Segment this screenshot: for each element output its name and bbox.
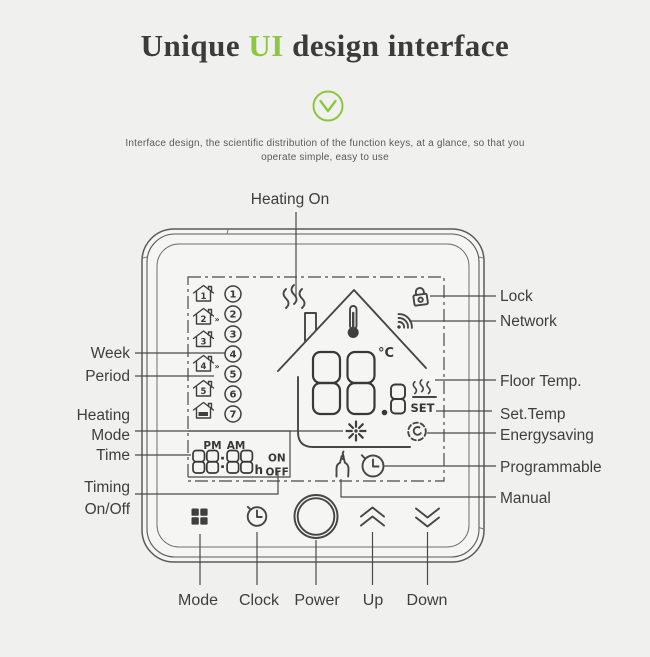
time-colon [221, 457, 224, 460]
callout-label-power: Power [294, 592, 339, 610]
callout-label-programmable: Programmable [500, 459, 602, 477]
callout-label-timing-onoff: Timing On/Off [60, 477, 130, 521]
callout-label-mode: Mode [178, 592, 218, 610]
celsius-unit: °C [378, 346, 394, 361]
week-number: 3 [230, 329, 237, 340]
callout-label-lock: Lock [500, 288, 533, 306]
set-indicator: SET [411, 401, 435, 415]
period-leave-mark: » [215, 315, 220, 324]
sun-heating-mode-icon [347, 422, 366, 441]
callout-label-clock: Clock [239, 592, 279, 610]
hour-unit: h [255, 463, 264, 477]
callout-label-time: Time [96, 447, 130, 465]
period-leave-mark: » [215, 362, 220, 371]
callout-label-down: Down [407, 592, 448, 610]
off-indicator: OFF [266, 467, 289, 479]
period-number: 3 [201, 338, 207, 348]
period-number: 5 [201, 387, 207, 397]
sleep-bed-mark [199, 412, 209, 416]
callout-label-period: Period [85, 368, 130, 386]
callout-label-floor-temp: Floor Temp. [500, 373, 582, 391]
callout-label-up: Up [363, 592, 383, 610]
week-number: 6 [230, 389, 237, 400]
week-number: 1 [230, 289, 237, 300]
callout-label-manual: Manual [500, 490, 551, 508]
week-number: 4 [230, 349, 237, 360]
week-number: 2 [230, 309, 237, 320]
period-number: 1 [201, 292, 207, 302]
period-number: 4 [201, 362, 207, 372]
callout-label-network: Network [500, 313, 557, 331]
callout-label-energysaving: Energysaving [500, 427, 594, 445]
callout-label-heating-mode: Heating Mode [50, 406, 130, 446]
week-number: 5 [230, 369, 237, 380]
callout-label-week: Week [91, 345, 130, 363]
week-number: 7 [230, 409, 237, 420]
decimal-point [382, 410, 388, 416]
on-indicator: ON [268, 453, 286, 465]
callout-label-set-temp: Set.Temp [500, 406, 565, 424]
callout-label-heating-on: Heating On [230, 191, 350, 209]
time-colon [221, 465, 224, 468]
period-number: 2 [201, 315, 207, 325]
